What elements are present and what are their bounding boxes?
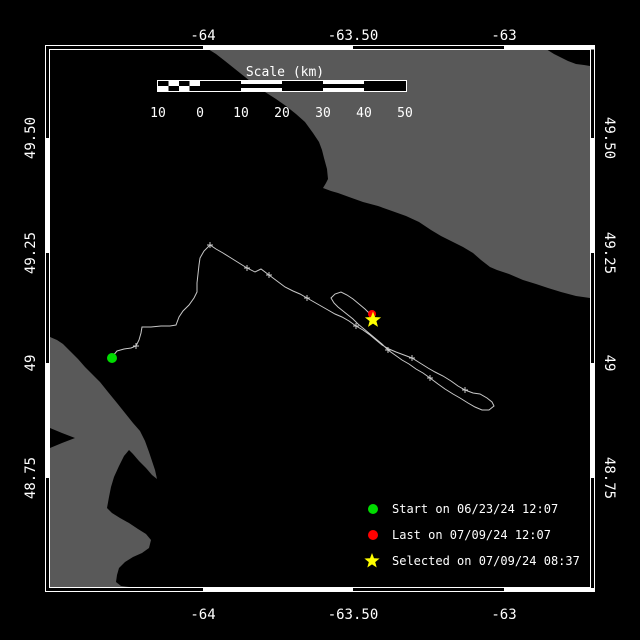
lat-label-right-49: 49 [601, 355, 617, 372]
legend-start-dot-icon [368, 504, 378, 514]
map-canvas[interactable]: -64 -63.50 -63 -64 -63.50 -63 49.50 49.2… [0, 0, 640, 640]
legend-item-last[interactable]: Last on 07/09/24 12:07 [368, 528, 551, 542]
svg-text:30: 30 [315, 106, 331, 121]
legend-last-label: Last on 07/09/24 12:07 [392, 528, 551, 542]
legend: Start on 06/23/24 12:07 Last on 07/09/24… [364, 502, 579, 568]
lat-label-left-4925: 49.25 [23, 232, 39, 274]
svg-text:20: 20 [274, 106, 290, 121]
scalebar-checker-section [158, 81, 200, 91]
legend-start-label: Start on 06/23/24 12:07 [392, 502, 558, 516]
lat-label-left-4950: 49.50 [23, 117, 39, 159]
lat-label-left-4875: 48.75 [23, 457, 39, 499]
svg-text:10: 10 [150, 106, 166, 121]
lat-label-left-49: 49 [23, 355, 39, 372]
start-position-marker[interactable] [107, 353, 117, 363]
lon-label-bottom-63: -63 [491, 607, 516, 623]
legend-selected-label: Selected on 07/09/24 08:37 [392, 554, 580, 568]
lon-label-top-63: -63 [491, 28, 516, 44]
svg-text:10: 10 [233, 106, 249, 121]
scalebar-blocks [200, 81, 406, 91]
lon-label-bottom-64: -64 [190, 607, 215, 623]
lat-label-right-4875: 48.75 [601, 457, 617, 499]
legend-last-dot-icon [368, 530, 378, 540]
tracking-map-window: -64 -63.50 -63 -64 -63.50 -63 49.50 49.2… [0, 0, 640, 640]
svg-text:50: 50 [397, 106, 413, 121]
legend-item-start[interactable]: Start on 06/23/24 12:07 [368, 502, 558, 516]
svg-text:40: 40 [356, 106, 372, 121]
lon-label-top-6350: -63.50 [328, 28, 379, 44]
legend-item-selected[interactable]: Selected on 07/09/24 08:37 [364, 553, 579, 568]
lat-label-right-4950: 49.50 [601, 117, 617, 159]
lon-label-top-64: -64 [190, 28, 215, 44]
lon-label-bottom-6350: -63.50 [328, 607, 379, 623]
scalebar-title: Scale (km) [246, 65, 324, 80]
svg-text:0: 0 [196, 106, 204, 121]
lat-label-right-4925: 49.25 [601, 232, 617, 274]
